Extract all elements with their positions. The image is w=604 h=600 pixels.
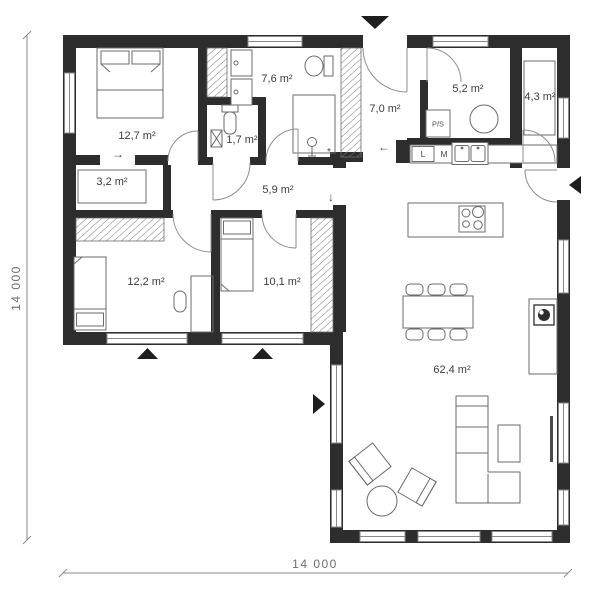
furniture-dining: [403, 284, 473, 340]
kitchen-island: [408, 203, 503, 237]
wardrobe-bedroom-three: [311, 218, 333, 332]
toilet-tank: [324, 56, 333, 76]
dimension-label-left: 14 000: [9, 265, 23, 311]
asterisk-mark: *: [327, 147, 331, 158]
room-label-bedroom-main: 12,7 m²: [118, 130, 156, 142]
room-label-bedroom-three: 10,1 m²: [263, 276, 301, 288]
furniture-living: [349, 396, 553, 516]
floor-plan-drawing: 12,7 m² 3,2 m² 7,6 m² 1,7 m² 5,9 m² 7,0 …: [0, 0, 604, 600]
side-door-marker-icon: [313, 394, 325, 414]
fridge-label: L: [421, 149, 426, 159]
terrace-door-marker-icon: [569, 176, 581, 194]
shower-area: [293, 95, 335, 153]
floor-plan-page: 12,7 m² 3,2 m² 7,6 m² 1,7 m² 5,9 m² 7,0 …: [0, 0, 604, 600]
room-label-bedroom-two: 12,2 m²: [127, 276, 165, 288]
window-marker-icon: [137, 348, 158, 359]
dining-table: [403, 296, 473, 328]
furniture-bedroom-main: [97, 48, 163, 118]
armchair: [349, 443, 391, 485]
entrance-marker-icon: [361, 16, 389, 29]
coffee-table: [367, 486, 397, 516]
room-label-pantry: 4,3 m²: [524, 91, 556, 103]
window-marker-icon: [252, 348, 273, 359]
toilet-bowl: [224, 112, 236, 134]
room-label-corridor: 5,9 m²: [262, 184, 294, 196]
furniture-fireplace: [529, 299, 557, 374]
arrow-down-icon: ↓: [328, 190, 334, 204]
desk: [191, 276, 213, 332]
furniture-bedroom-three: [221, 218, 253, 291]
room-label-wc: 1,7 m²: [226, 134, 258, 146]
dishwasher-label: M: [440, 149, 447, 159]
dimension-left: 14 000: [9, 31, 31, 544]
furniture-kitchen-island: [408, 203, 503, 237]
washer-dryer-label: P/S: [432, 120, 444, 129]
desk-chair: [174, 291, 186, 312]
arrow-right-icon: →: [112, 147, 124, 161]
room-label-living: 62,4 m²: [433, 364, 471, 376]
room-label-bathroom: 7,6 m²: [261, 73, 293, 85]
wardrobe-hall-closet: [341, 48, 361, 157]
dimension-label-bottom: 14 000: [292, 557, 338, 571]
room-label-closet: 3,2 m²: [96, 176, 128, 188]
toilet-bowl: [305, 56, 323, 76]
shower-drain-icon: [308, 138, 317, 147]
furniture-bedroom-two: [74, 257, 213, 332]
water-heater-icon: [470, 105, 498, 133]
dimension-bottom: 14 000: [59, 557, 572, 577]
terrace-door-opening: [557, 168, 570, 200]
furniture-kitchen-counter: [410, 143, 557, 165]
toilet-tank: [222, 105, 238, 112]
wardrobe-bathroom-shaft: [207, 48, 227, 97]
entrance-opening: [363, 35, 407, 48]
arrow-left-icon: ←: [378, 140, 390, 154]
side-table: [498, 425, 520, 462]
wardrobe-bedroom-two: [76, 218, 164, 241]
room-label-utility: 5,2 m²: [452, 83, 484, 95]
tv-icon: [550, 416, 553, 462]
armchair: [398, 468, 436, 506]
room-label-hall: 7,0 m²: [369, 103, 401, 115]
